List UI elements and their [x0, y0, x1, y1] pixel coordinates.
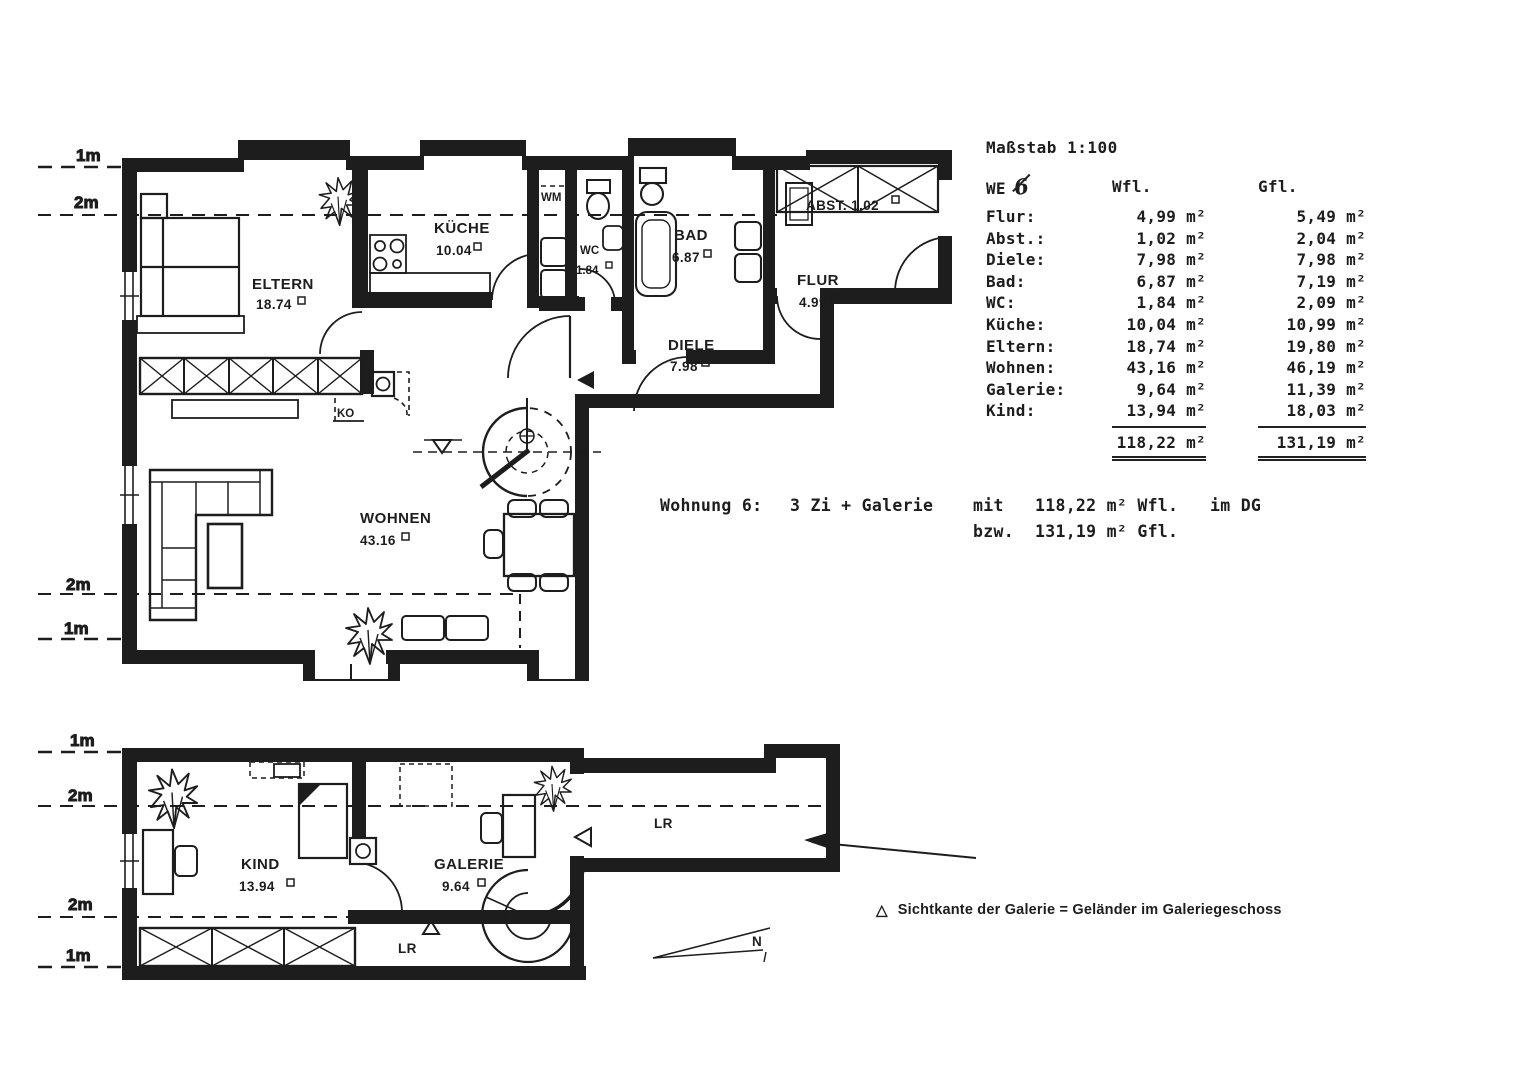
row-wfl: 9,64 m²: [1112, 379, 1206, 401]
room-label: KÜCHE: [434, 220, 490, 237]
room-area: 13.94: [239, 879, 275, 894]
room-label: FLUR: [797, 272, 839, 289]
gallery-edge-marker-icon: [577, 371, 594, 389]
we-number-handwritten: 6: [1011, 169, 1032, 205]
area-marker-icon: [478, 879, 485, 886]
room-area: 9.64: [442, 879, 470, 894]
room-area: 7.98: [670, 359, 698, 374]
total-gfl: 131,19 m²: [1258, 432, 1366, 454]
row-wfl: 13,94 m²: [1112, 400, 1206, 422]
room-label: ELTERN: [252, 276, 314, 293]
row-label: Küche:: [986, 314, 1112, 336]
row-gfl: 7,19 m²: [1258, 271, 1366, 293]
summary-mit: mit: [973, 496, 1004, 515]
row-label: Eltern:: [986, 336, 1112, 358]
row-label: Diele:: [986, 249, 1112, 271]
area-marker-icon: [298, 297, 305, 304]
area-marker-icon: [892, 196, 899, 203]
row-gfl: 7,98 m²: [1258, 249, 1366, 271]
row-wfl: 1,02 m²: [1112, 228, 1206, 250]
height-mark-label: 2m: [74, 193, 99, 212]
north-arrow: N: [653, 928, 770, 962]
row-wfl: 7,98 m²: [1112, 249, 1206, 271]
row-wfl: 1,84 m²: [1112, 292, 1206, 314]
summary-rooms: 3 Zi + Galerie: [790, 496, 933, 515]
room-label: KO: [337, 408, 354, 420]
north-label: N: [752, 934, 762, 949]
row-wfl: 10,04 m²: [1112, 314, 1206, 336]
room-area: 6.87: [672, 250, 700, 265]
floorplan-drawing: 1m 2m 2m 1m: [0, 0, 1527, 1080]
room-label: LR: [654, 816, 673, 831]
room-label: WC: [580, 245, 599, 257]
area-marker-icon: [474, 243, 481, 250]
coffee-table: [208, 524, 242, 588]
row-wfl: 43,16 m²: [1112, 357, 1206, 379]
room-label: KIND: [241, 856, 280, 873]
row-label: WC:: [986, 292, 1112, 314]
row-gfl: 10,99 m²: [1258, 314, 1366, 336]
row-wfl: 4,99 m²: [1112, 206, 1206, 228]
room-area: 18.74: [256, 297, 292, 312]
lower-room-labels: KIND 13.94 GALERIE 9.64 LR LR: [239, 816, 673, 956]
height-mark-label: 2m: [66, 575, 91, 594]
lower-floor-plan: 1m 2m 2m 1m: [38, 731, 976, 980]
summary-bzw: bzw.: [973, 522, 1014, 541]
upper-floor-plan: 1m 2m 2m 1m: [38, 138, 952, 680]
area-marker-icon: [704, 250, 711, 257]
sideboard: [172, 400, 298, 418]
row-gfl: 5,49 m²: [1258, 206, 1366, 228]
room-label: WM: [541, 192, 561, 204]
room-label: GALERIE: [434, 856, 504, 873]
kind-wardrobe: [140, 928, 355, 966]
row-gfl: 46,19 m²: [1258, 357, 1366, 379]
room-label: WOHNEN: [360, 510, 431, 527]
room-label: ABST. 1.02: [806, 198, 879, 213]
sofa: [150, 470, 272, 620]
row-wfl: 18,74 m²: [1112, 336, 1206, 358]
kind-bed: [299, 784, 347, 858]
lower-door-arcs: [352, 862, 402, 912]
summary-title: Wohnung 6:: [660, 496, 762, 515]
row-gfl: 11,39 m²: [1258, 379, 1366, 401]
room-label: BAD: [674, 227, 708, 244]
height-mark-label: 1m: [76, 146, 101, 165]
eltern-wardrobe: [140, 358, 362, 394]
gallery-edge-marker-icon: [575, 828, 591, 846]
room-area: 10.04: [436, 243, 472, 258]
height-mark-label: 2m: [68, 895, 93, 914]
row-gfl: 18,03 m²: [1258, 400, 1366, 422]
balcony-cushions: [402, 616, 488, 640]
row-label: Wohnen:: [986, 357, 1112, 379]
row-label: Abst.:: [986, 228, 1112, 250]
summary-location: im DG: [1210, 496, 1261, 515]
legend-text: Sichtkante der Galerie = Geländer im Gal…: [898, 902, 1282, 918]
height-mark-label: 1m: [66, 946, 91, 965]
row-gfl: 2,04 m²: [1258, 228, 1366, 250]
room-area: 1.84: [576, 265, 599, 277]
room-label: LR: [398, 941, 417, 956]
kind-desk: [143, 830, 197, 894]
row-label: Kind:: [986, 400, 1112, 422]
triangle-marker-icon: △: [876, 901, 888, 919]
row-label: Bad:: [986, 271, 1112, 293]
we-label: WE: [986, 179, 1006, 198]
scale-label: Maßstab 1:100: [986, 138, 1118, 157]
shelves: [250, 762, 452, 806]
header-we: WE6: [986, 170, 1112, 206]
level-marker: [424, 440, 462, 453]
kitchen-counter: [370, 273, 490, 295]
row-label: Flur:: [986, 206, 1112, 228]
height-mark-label: 1m: [70, 731, 95, 750]
area-marker-icon: [287, 879, 294, 886]
row-wfl: 6,87 m²: [1112, 271, 1206, 293]
summary-wfl: 118,22 m² Wfl.: [1035, 496, 1178, 515]
room-label: DIELE: [668, 337, 715, 354]
floorplan-sheet: 1m 2m 2m 1m: [0, 0, 1527, 1080]
row-label: Galerie:: [986, 379, 1112, 401]
header-wfl: Wfl.: [1112, 170, 1206, 206]
header-gfl: Gfl.: [1258, 170, 1366, 206]
legend: △ Sichtkante der Galerie = Geländer im G…: [876, 901, 1282, 919]
area-marker-icon: [606, 262, 612, 268]
balcony-doors: [303, 664, 589, 680]
plant-icon: [346, 608, 392, 664]
row-gfl: 19,80 m²: [1258, 336, 1366, 358]
room-area: 4.99: [799, 295, 827, 310]
lower-window: [120, 834, 139, 888]
kitchen-stove: [370, 235, 406, 273]
area-marker-icon: [402, 533, 409, 540]
total-wfl: 118,22 m²: [1112, 432, 1206, 454]
galerie-desk: [481, 795, 535, 857]
room-area: 43.16: [360, 533, 396, 548]
plant-icon: [149, 769, 197, 828]
height-mark-label: 2m: [68, 786, 93, 805]
dining-set: [484, 500, 574, 591]
height-mark-label: 1m: [64, 619, 89, 638]
area-table: WE6 Wfl. Gfl. Flur:4,99 m²5,49 m² Abst.:…: [986, 170, 1378, 463]
row-gfl: 2,09 m²: [1258, 292, 1366, 314]
heater: [350, 838, 376, 864]
summary-gfl: 131,19 m² Gfl.: [1035, 522, 1178, 541]
plant-icon: [534, 766, 571, 811]
